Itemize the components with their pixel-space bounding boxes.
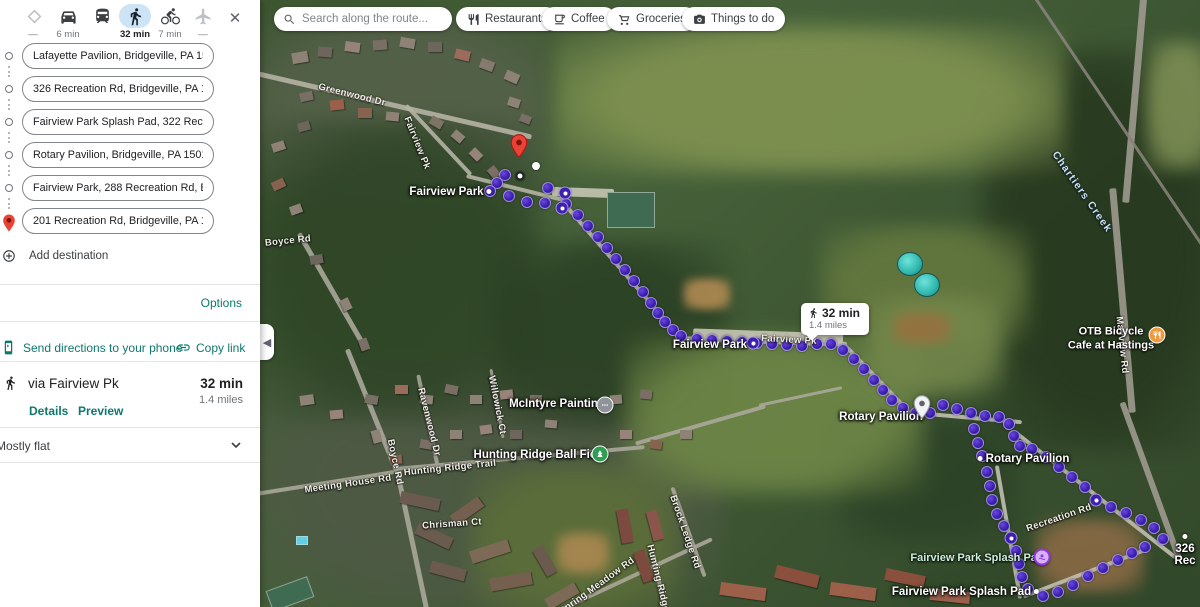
splash-pad-poi[interactable] <box>1034 549 1051 566</box>
stop-input-4[interactable] <box>22 142 214 168</box>
walk-icon <box>126 7 145 26</box>
route-dot <box>937 399 949 411</box>
building <box>649 439 662 450</box>
start-pin[interactable] <box>511 134 528 163</box>
building <box>500 389 514 399</box>
rail-dot <box>8 198 10 200</box>
building <box>545 419 558 428</box>
terrain <box>1145 40 1200 170</box>
building <box>450 430 462 439</box>
walk-icon <box>808 307 819 319</box>
route-dot <box>1079 481 1091 493</box>
route-dot <box>868 374 880 386</box>
search-input[interactable] <box>302 13 443 25</box>
route-dot <box>1112 554 1124 566</box>
directions-panel: — 6 min 32 min 7 min — ✕ Add <box>0 0 260 607</box>
copy-link-label: Copy link <box>196 341 245 355</box>
route-dot <box>1010 545 1022 557</box>
groceries-icon <box>618 13 631 26</box>
building <box>390 454 403 464</box>
origin-ring-dot <box>516 172 525 181</box>
route-dot <box>1120 507 1132 519</box>
add-circle-icon <box>2 249 16 263</box>
stop-input-5[interactable] <box>22 175 214 201</box>
route-dot <box>542 182 554 194</box>
rail-dot <box>8 71 10 73</box>
route-waypoint-dot <box>1005 532 1018 545</box>
route-duration: 32 min <box>200 376 243 391</box>
rail-dot <box>8 75 10 77</box>
rail-dot <box>8 108 10 110</box>
building <box>774 565 820 588</box>
route-dot <box>984 480 996 492</box>
route-dot <box>1067 579 1079 591</box>
rail-dot <box>8 99 10 101</box>
route-dot <box>592 231 604 243</box>
route-dot <box>582 220 594 232</box>
diamond-icon <box>25 7 44 26</box>
building <box>470 395 482 404</box>
stop-circle-icon <box>5 52 13 60</box>
route-dot <box>1157 533 1169 545</box>
route-dot <box>965 407 977 419</box>
rail-dot <box>8 137 10 139</box>
rail-dot <box>8 170 10 172</box>
divider <box>0 284 260 285</box>
route-dot <box>968 423 980 435</box>
add-destination-label: Add destination <box>29 250 108 262</box>
tooltip-duration: 32 min <box>822 306 860 320</box>
rail-dot <box>8 207 10 209</box>
route-dot <box>1126 547 1138 559</box>
waypoint-white-dot <box>532 162 540 170</box>
tooltip-distance: 1.4 miles <box>809 320 860 331</box>
route-dot <box>610 253 622 265</box>
building <box>386 111 400 121</box>
building <box>510 430 522 439</box>
rail-dot <box>8 141 10 143</box>
building <box>299 394 314 406</box>
terrain <box>683 278 731 310</box>
route-dot <box>539 197 551 209</box>
route-dot <box>837 344 849 356</box>
route-dot <box>1135 514 1147 526</box>
route-dot <box>619 264 631 276</box>
stop-input-2[interactable] <box>22 76 214 102</box>
route-waypoint-dot <box>559 187 572 200</box>
rail-dot <box>8 174 10 176</box>
copy-link-button[interactable]: Copy link <box>176 340 245 355</box>
route-dot <box>979 410 991 422</box>
route-dot <box>886 394 898 406</box>
route-via-label: via Fairview Pk <box>28 376 119 391</box>
building <box>719 582 766 601</box>
coffee-icon <box>553 13 566 26</box>
otb-cafe-poi[interactable] <box>1149 327 1166 344</box>
chevron-down-icon[interactable] <box>228 437 244 453</box>
rail-dot <box>8 132 10 134</box>
route-dot <box>951 403 963 415</box>
water-tank <box>914 273 940 297</box>
route-waypoint-dot <box>747 337 760 350</box>
water-tank <box>897 252 923 276</box>
court <box>607 192 655 228</box>
route-dot <box>628 275 640 287</box>
route-dot <box>1053 461 1065 473</box>
divider <box>0 427 260 428</box>
route-dot <box>897 402 909 414</box>
stop-input-1[interactable] <box>22 43 214 69</box>
route-dot <box>1022 583 1034 595</box>
rail-dot <box>8 203 10 205</box>
plane-icon <box>194 7 213 26</box>
route-dot <box>1026 443 1038 455</box>
chip-things-to-do[interactable]: Things to do <box>682 7 785 31</box>
route-dot <box>858 363 870 375</box>
terrain <box>555 25 1065 175</box>
terrain <box>556 532 610 574</box>
route-dot <box>521 196 533 208</box>
chip-coffee[interactable]: Coffee <box>542 7 616 31</box>
bike-icon <box>161 7 180 26</box>
route-dot <box>796 340 808 352</box>
building <box>420 394 434 404</box>
building <box>330 99 345 110</box>
building <box>428 42 442 52</box>
mode-transit-button[interactable] <box>86 4 118 28</box>
chip-label: Groceries <box>636 13 686 25</box>
route-dot <box>572 209 584 221</box>
stop-input-6[interactable] <box>22 208 214 234</box>
google-maps-directions-app: Greenwood DrFairview PkFairview ParkBoyc… <box>0 0 1200 607</box>
link-icon <box>176 340 191 355</box>
building <box>344 41 360 53</box>
route-dot <box>1066 471 1078 483</box>
mode-bike-button[interactable] <box>154 4 186 28</box>
route-dot <box>766 338 778 350</box>
route-dot <box>1139 541 1151 553</box>
route-dot <box>675 330 687 342</box>
building <box>318 46 333 57</box>
route-dot <box>848 353 860 365</box>
divider <box>0 321 260 322</box>
mcintyre-painting-poi[interactable] <box>597 397 614 414</box>
route-dot <box>1014 440 1026 452</box>
rail-dot <box>8 165 10 167</box>
mode-drive-time: 6 min <box>46 29 90 40</box>
route-dot <box>1013 558 1025 570</box>
route-distance: 1.4 miles <box>199 394 243 406</box>
route-dot <box>972 437 984 449</box>
mode-best-button[interactable] <box>18 4 50 28</box>
stop-input-3[interactable] <box>22 109 214 135</box>
rail-dot <box>8 104 10 106</box>
options-link[interactable]: Options <box>201 296 242 310</box>
things-to-do-icon <box>693 13 706 26</box>
collapse-panel-button[interactable]: ◀ <box>260 324 274 360</box>
route-dot <box>1105 501 1117 513</box>
building <box>330 409 344 419</box>
mode-walk-button[interactable] <box>119 4 151 28</box>
rotary-pavilion-pin[interactable] <box>914 395 931 424</box>
route-dot <box>706 334 718 346</box>
preview-link[interactable]: Preview <box>78 404 123 418</box>
send-to-phone-label: Send directions to your phone <box>23 341 182 355</box>
walk-icon <box>3 374 18 392</box>
route-dot <box>981 466 993 478</box>
route-dot <box>484 185 496 197</box>
building <box>373 40 388 51</box>
elevation-summary: Mostly flat <box>0 439 50 453</box>
divider <box>0 462 260 463</box>
route-dot <box>1040 451 1052 463</box>
chip-label: Restaurants <box>485 13 547 25</box>
close-directions-button[interactable]: ✕ <box>224 7 246 29</box>
route-waypoint-dot <box>556 202 569 215</box>
route-dot <box>1052 586 1064 598</box>
route-dot <box>1148 522 1160 534</box>
stop-circle-icon <box>5 184 13 192</box>
mode-flight-button[interactable] <box>187 4 219 28</box>
route-dot <box>601 242 613 254</box>
route-dot <box>691 333 703 345</box>
send-to-phone-button[interactable]: Send directions to your phone <box>1 340 182 355</box>
chip-label: Coffee <box>571 13 605 25</box>
route-dot <box>998 520 1010 532</box>
bus-icon <box>93 7 112 26</box>
rail-dot <box>8 66 10 68</box>
search-along-route-bar[interactable] <box>274 7 452 31</box>
car-icon <box>59 7 78 26</box>
route-dot <box>637 286 649 298</box>
route-dot <box>1097 562 1109 574</box>
route-dot <box>1016 571 1028 583</box>
details-link[interactable]: Details <box>29 404 68 418</box>
building <box>829 582 876 601</box>
add-destination-button[interactable]: Add destination <box>2 249 108 263</box>
restaurants-icon <box>467 13 480 26</box>
route-dot <box>986 494 998 506</box>
route-dot <box>991 508 1003 520</box>
route-time-tooltip[interactable]: 32 min 1.4 miles <box>801 303 869 335</box>
mode-drive-button[interactable] <box>52 4 84 28</box>
building <box>479 424 492 435</box>
route-waypoint-dot <box>1090 494 1103 507</box>
route-dot <box>976 450 988 462</box>
building <box>680 430 692 439</box>
route-dot <box>721 335 733 347</box>
destination-pin-icon <box>2 214 16 237</box>
route-dot <box>825 338 837 350</box>
divider <box>0 361 260 362</box>
route-dot <box>877 384 889 396</box>
terrain <box>865 295 1005 395</box>
route-dot <box>1082 570 1094 582</box>
terrain <box>893 312 951 344</box>
building <box>620 430 632 439</box>
route-dot <box>503 190 515 202</box>
map[interactable]: Greenwood DrFairview PkFairview ParkBoyc… <box>260 0 1200 607</box>
route-dot <box>781 339 793 351</box>
stop-circle-icon <box>5 85 13 93</box>
chip-label: Things to do <box>711 13 774 25</box>
stop-circle-icon <box>5 151 13 159</box>
stop-circle-icon <box>5 118 13 126</box>
building <box>358 108 372 118</box>
route-dot <box>1037 590 1049 602</box>
search-icon <box>283 13 296 26</box>
mode-flight-time: — <box>181 29 225 40</box>
route-dot <box>1003 418 1015 430</box>
phone-icon <box>1 340 16 355</box>
court <box>296 536 308 545</box>
building <box>530 395 542 404</box>
building <box>395 385 408 394</box>
ball-field-poi[interactable] <box>592 446 609 463</box>
building <box>640 389 653 399</box>
